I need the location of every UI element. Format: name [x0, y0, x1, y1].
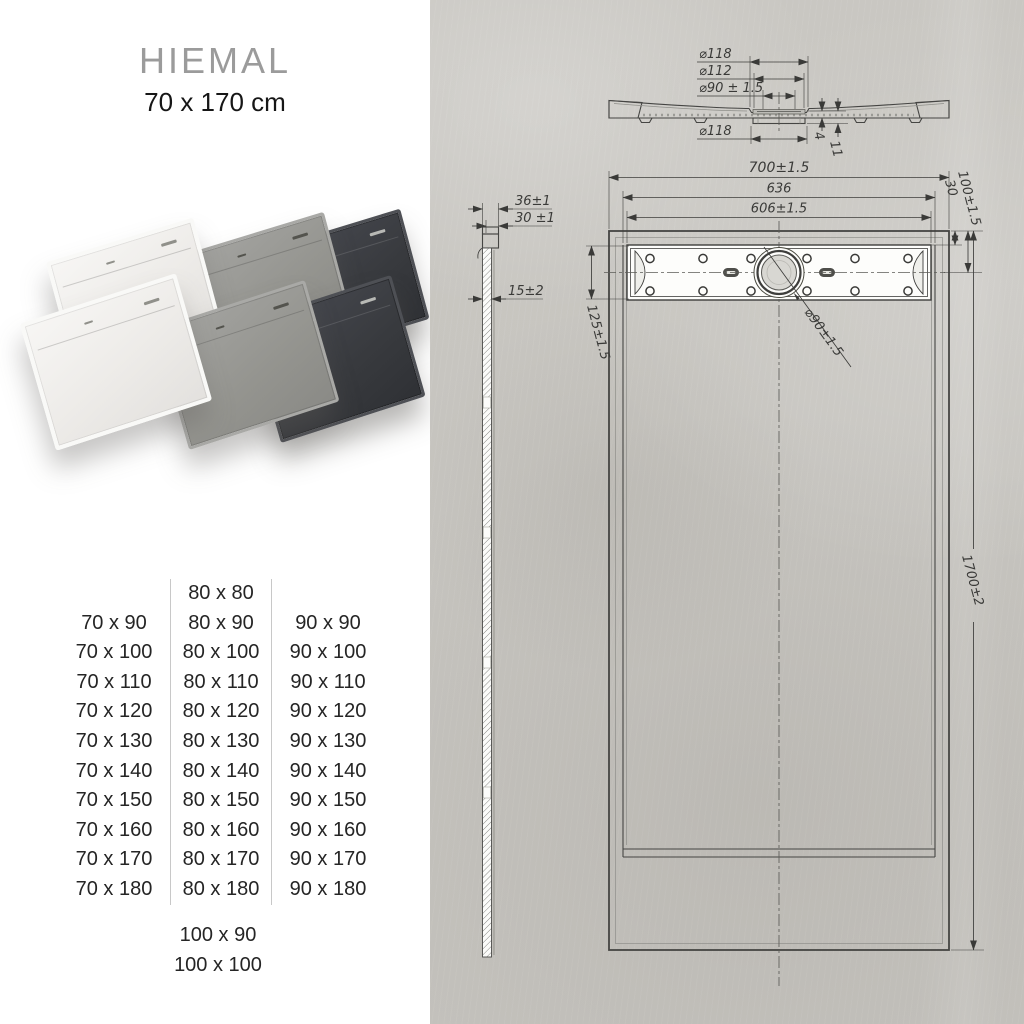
dim-label-125: 125±1.5	[583, 303, 612, 361]
section-foot	[694, 118, 707, 123]
dim-label-dia112: ⌀112	[699, 64, 732, 79]
dim-30-side: 30 ±1	[472, 211, 555, 233]
side-notch	[483, 397, 490, 408]
side-top-block	[483, 234, 499, 248]
dim-1700: 1700±2	[951, 231, 986, 950]
dim-label-36: 36±1	[515, 194, 551, 209]
dim-label-depth4: 4	[810, 130, 827, 142]
dim-label-dia118-bottom: ⌀118	[699, 124, 732, 139]
side-lip-curve	[478, 248, 483, 259]
side-top-cap	[483, 227, 499, 234]
dim-label-dia90-plan: ⌀90±1.5	[801, 306, 846, 360]
side-notch	[483, 657, 490, 668]
section-view: ⌀118 ⌀112 ⌀90 ± 1.5	[609, 47, 949, 159]
section-foot	[854, 118, 867, 123]
dim-dia118-bottom: ⌀118	[697, 124, 807, 144]
technical-drawing: ⌀118 ⌀112 ⌀90 ± 1.5	[0, 0, 1024, 1024]
side-notch	[483, 527, 490, 538]
section-foot	[909, 118, 922, 123]
drain-circle	[754, 248, 804, 298]
product-sheet: HIEMAL 70 x 170 cm 70 x 90 70 x 100 70 x…	[0, 0, 1024, 1024]
dim-label-700: 700±1.5	[749, 160, 810, 176]
dim-125: 125±1.5	[583, 246, 629, 362]
side-wall	[483, 248, 492, 957]
dim-label-dia118-top: ⌀118	[699, 47, 732, 62]
dim-label-30-side: 30 ±1	[515, 211, 555, 226]
dim-dia90-section: ⌀90 ± 1.5	[697, 81, 795, 109]
side-notch	[483, 787, 490, 798]
section-foot	[639, 118, 652, 123]
dim-label-606: 606±1.5	[751, 202, 807, 217]
dim-label-dia90-section: ⌀90 ± 1.5	[699, 81, 763, 96]
dim-label-edge100: 100±1.5	[954, 169, 983, 227]
plan-view: ⌀90±1.5 700±1.5 636 606±1.5	[583, 160, 986, 986]
dim-15: 15±2	[468, 284, 544, 299]
dim-label-636: 636	[767, 182, 792, 197]
dim-label-depth11: 11	[826, 139, 845, 159]
plan-outer-rim	[609, 231, 949, 950]
dim-depth-4: 4	[808, 98, 846, 142]
dim-label-15: 15±2	[508, 284, 544, 299]
side-view: 36±1 30 ±1 15±2	[468, 194, 555, 957]
dim-label-1700: 1700±2	[958, 553, 986, 607]
